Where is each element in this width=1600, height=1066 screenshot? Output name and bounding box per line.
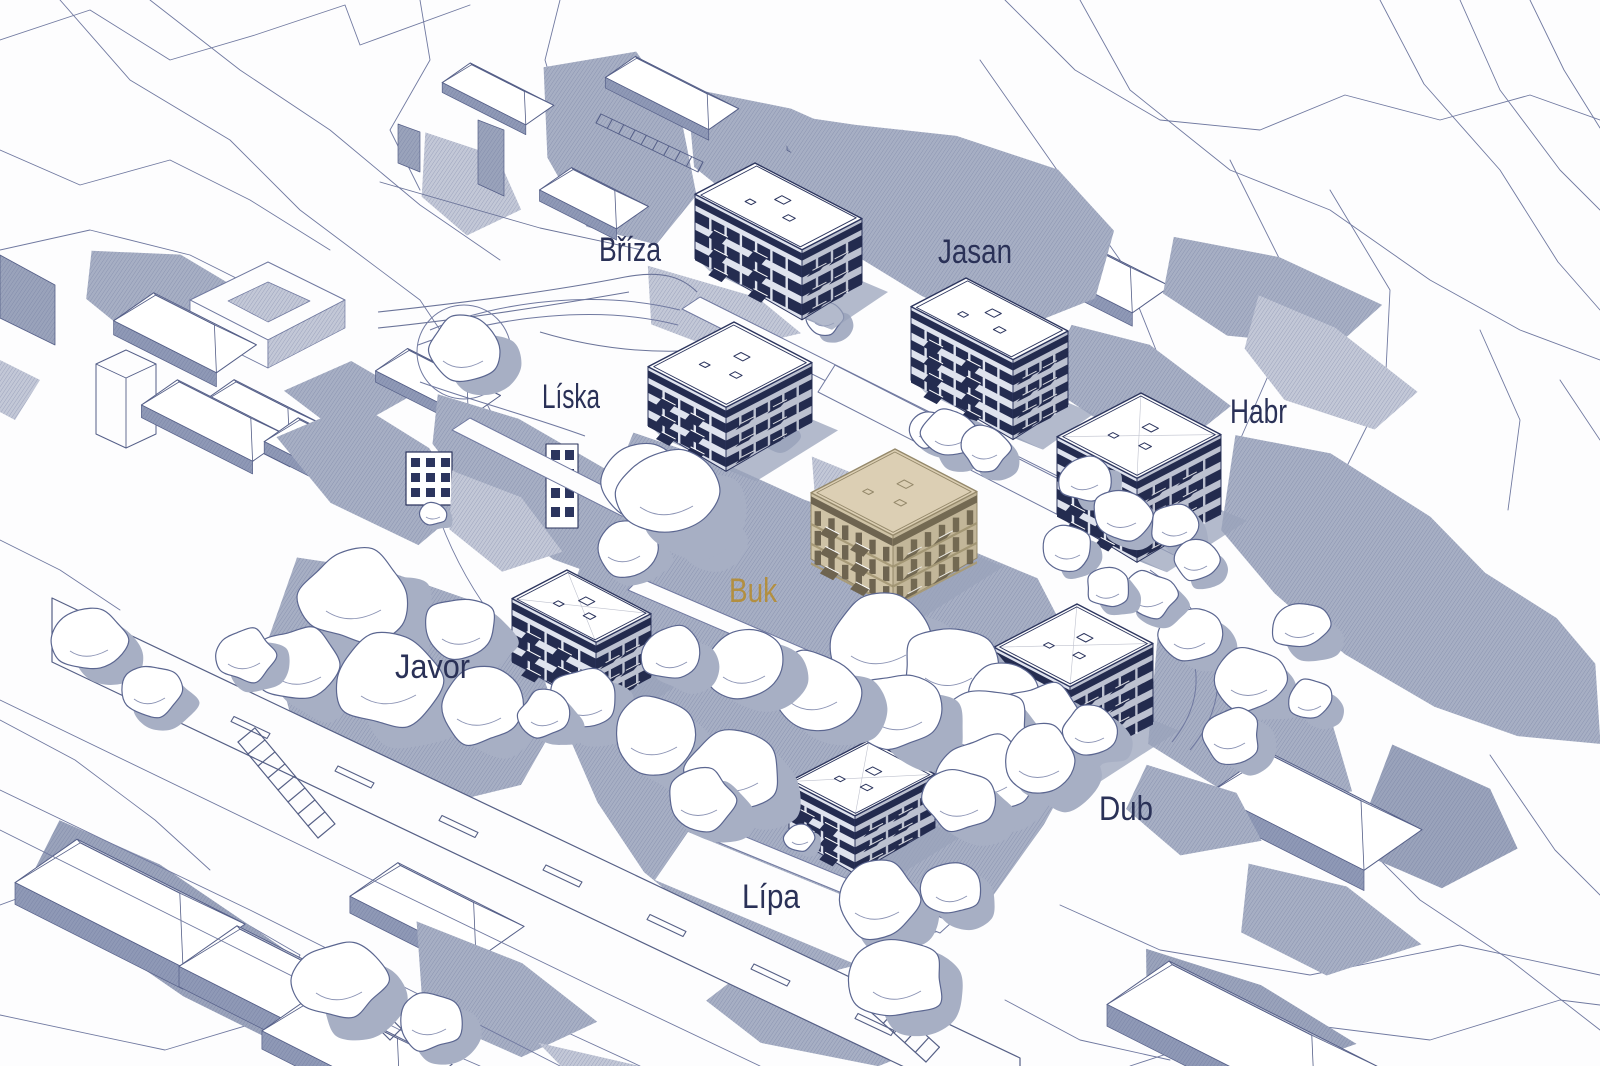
svg-text:Bříza: Bříza (599, 231, 661, 269)
svg-text:Habr: Habr (1230, 393, 1287, 431)
svg-text:Buk: Buk (729, 572, 778, 610)
svg-text:Jasan: Jasan (938, 233, 1012, 271)
svg-text:Líska: Líska (542, 378, 600, 416)
svg-text:Lípa: Lípa (742, 878, 800, 916)
svg-text:Dub: Dub (1099, 790, 1153, 828)
svg-text:Javor: Javor (395, 648, 470, 686)
